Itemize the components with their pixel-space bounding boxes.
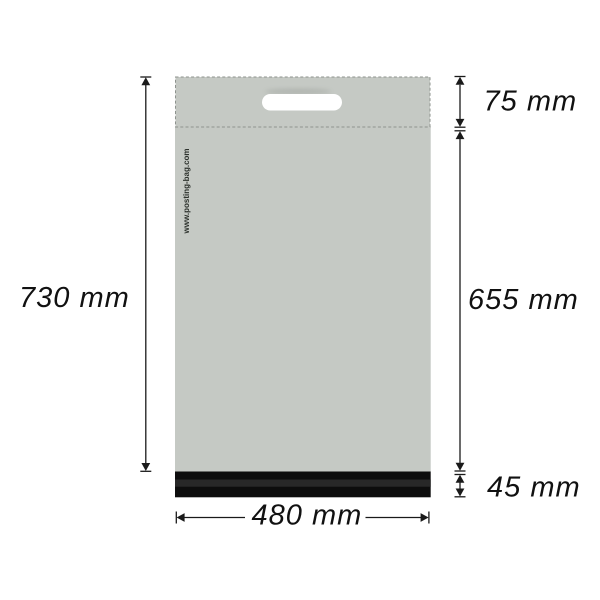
svg-text:655 mm: 655 mm	[468, 284, 579, 316]
svg-text:www.posting-bag.com: www.posting-bag.com	[182, 148, 191, 234]
svg-text:480 mm: 480 mm	[252, 500, 363, 532]
svg-text:45 mm: 45 mm	[487, 472, 581, 504]
svg-text:730 mm: 730 mm	[19, 282, 130, 314]
svg-text:75 mm: 75 mm	[484, 86, 578, 118]
